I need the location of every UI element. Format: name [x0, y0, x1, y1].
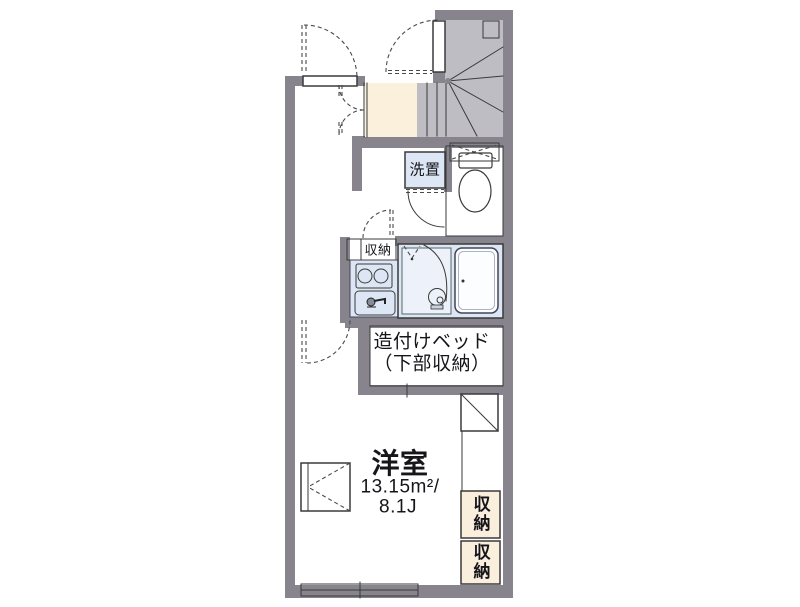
closet-lower-label: 収納: [472, 543, 489, 581]
closet-upper-label: 収納: [472, 495, 489, 533]
entrance-door-nub: [433, 72, 447, 84]
room-door-leaf: [302, 320, 306, 363]
room-name-label: 洋室: [371, 450, 428, 478]
balcony-door-leaf: [302, 25, 306, 74]
room-size-label: 8.1J: [379, 498, 417, 517]
kitchen-storage-label: 収納: [364, 244, 391, 257]
shoe-door-arcs: [339, 85, 364, 135]
washroom-left-wall: [352, 136, 362, 191]
bathtub-dot: [462, 280, 465, 283]
room-door-swing: [302, 320, 350, 363]
bed-label-line1: 造付けベッド: [373, 333, 490, 352]
bed-left-wall: [358, 315, 370, 393]
toilet-room: [446, 146, 503, 236]
toilet-door-swing: [406, 190, 444, 228]
stair-treads-area: [417, 83, 445, 137]
bath-washing-area: [402, 248, 451, 314]
bath-folding-door-pivot: [411, 258, 414, 261]
floor-plan: 洗置 収納 造付けベッド （下部収納） 洋室 13.15m²/ 8.1J 収納 …: [0, 0, 800, 607]
entrance-genkan: [365, 83, 417, 137]
shoe-cabinet-doors: [339, 85, 364, 135]
entrance-door-swing: [386, 20, 445, 74]
fold-down-table: [301, 463, 350, 511]
staircase: [417, 20, 503, 137]
washroom-door-arc: [363, 210, 391, 238]
toilet-door-arc: [408, 191, 444, 227]
stair-top-wall: [435, 10, 513, 20]
stair-pivot: [445, 78, 451, 84]
balcony-door-threshold: [303, 76, 357, 86]
room-area-label: 13.15m²/: [361, 478, 440, 497]
bottom-window: [301, 582, 418, 598]
washroom-door-swing: [363, 210, 393, 238]
bathroom: [398, 244, 503, 318]
bed-label-line2: （下部収納）: [373, 355, 490, 374]
right-wall: [503, 10, 513, 598]
balcony-door-arc: [304, 25, 357, 78]
balcony-door-swing: [302, 25, 357, 86]
entrance-door-arc: [386, 20, 438, 72]
left-wall: [285, 76, 295, 598]
washroom-door-leaf: [390, 210, 393, 238]
toilet-fixture: [459, 153, 492, 212]
bathtub: [455, 248, 498, 313]
kitchen-left-wall: [340, 237, 350, 323]
bath-drain-plate: [431, 305, 443, 309]
entrance-door-leaf: [433, 21, 445, 72]
toilet-door-open-pos: [406, 190, 444, 193]
refrigerator-space: [461, 394, 498, 431]
washer-label: 洗置: [409, 163, 440, 178]
room-door-arc: [307, 320, 350, 363]
toilet-bowl: [459, 170, 491, 212]
entrance-door-opening: [388, 71, 432, 74]
